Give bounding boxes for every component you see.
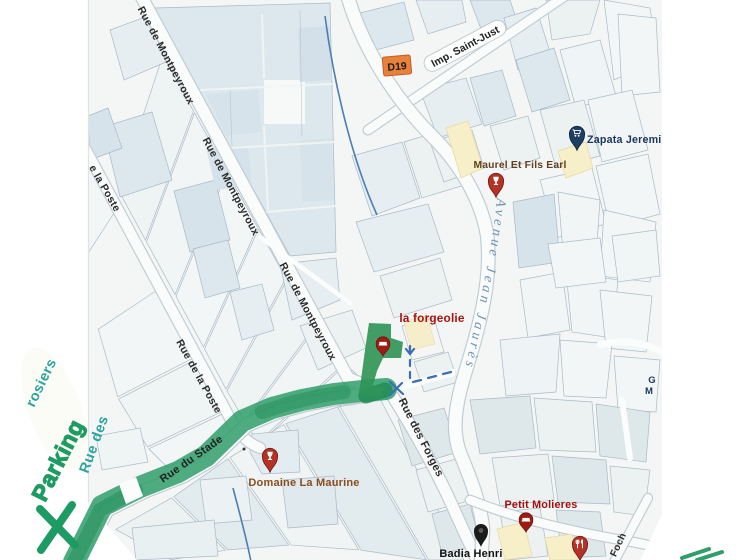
svg-text:M: M: [645, 386, 653, 397]
svg-text:Maurel Et Fils Earl: Maurel Et Fils Earl: [473, 160, 566, 171]
svg-text:Zapata Jeremi: Zapata Jeremi: [587, 134, 661, 146]
svg-text:Petit Molieres: Petit Molieres: [504, 499, 577, 511]
svg-text:G: G: [648, 375, 656, 386]
svg-text:Domaine La Maurine: Domaine La Maurine: [248, 477, 359, 489]
svg-text:la forgeolie: la forgeolie: [399, 311, 465, 325]
svg-text:D19: D19: [387, 60, 407, 74]
svg-text:Badia Henri: Badia Henri: [439, 548, 502, 560]
